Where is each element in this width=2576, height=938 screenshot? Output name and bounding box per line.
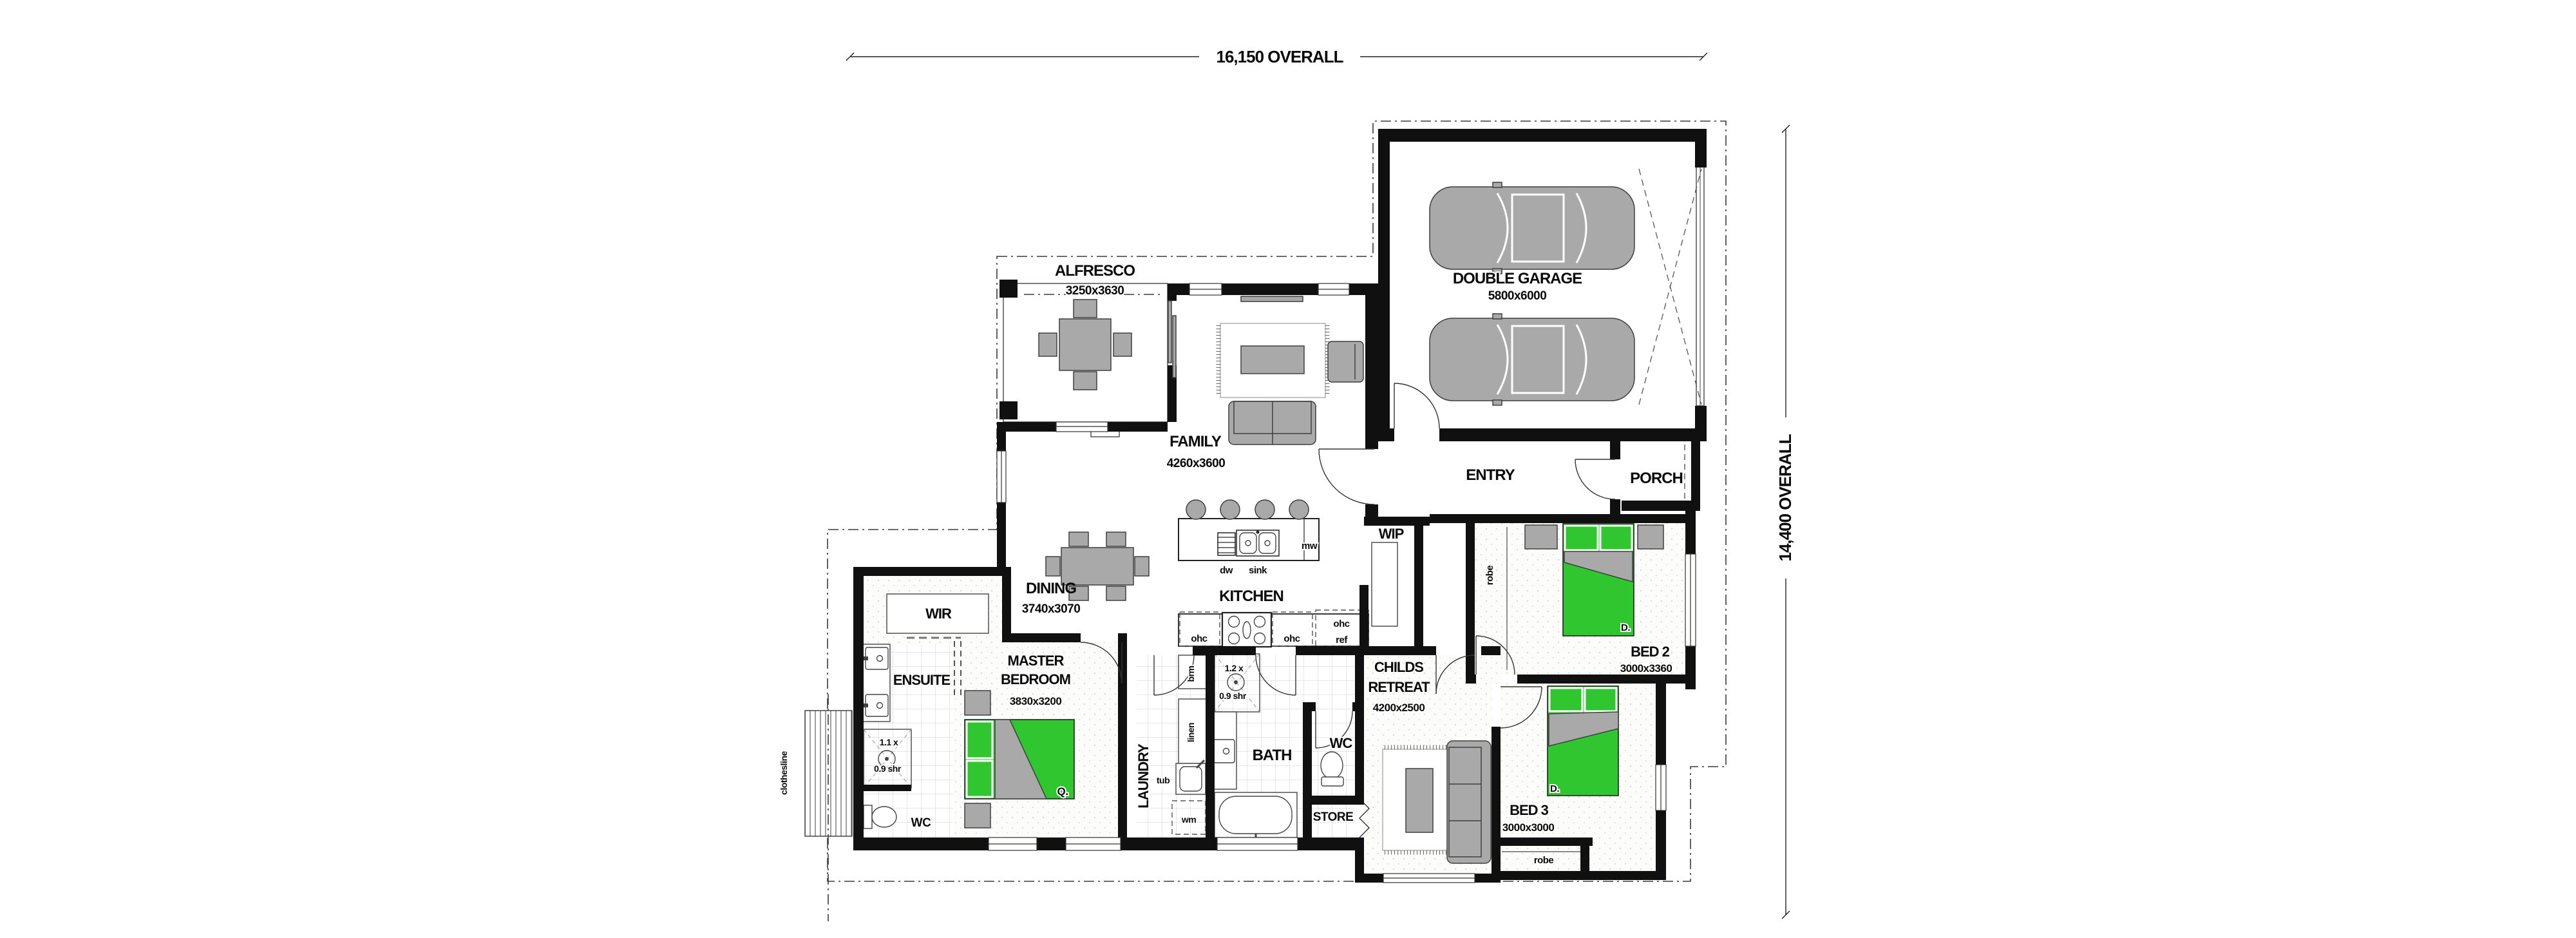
pillow	[967, 722, 992, 758]
room-label-bed3: BED 3	[1510, 802, 1549, 818]
toilet	[864, 805, 896, 828]
room-label-family: FAMILY	[1170, 433, 1222, 450]
childs-retreat-furniture	[1383, 741, 1491, 863]
room-label-wc-ensuite: WC	[911, 816, 931, 830]
floor-plan-page: 16,150 OVERALL 14,400 OVERALL ALFRESCO 3…	[0, 0, 2576, 938]
bedside-table	[1525, 525, 1557, 549]
bedside-table	[1638, 525, 1663, 549]
room-label-porch: PORCH	[1630, 470, 1683, 487]
car-top-view	[1430, 182, 1634, 274]
room-label-kitchen: KITCHEN	[1219, 588, 1283, 605]
label-double-bed2: D.	[1621, 622, 1630, 633]
label-ensuite-shower-2: 0.9 shr	[874, 763, 902, 774]
pillow	[1565, 526, 1598, 550]
window	[989, 837, 1037, 850]
room-label-wip: WIP	[1379, 526, 1404, 542]
coffee-table	[1241, 346, 1304, 374]
sofa-two-seat	[1229, 401, 1316, 445]
sofa-three-seat	[1447, 741, 1491, 863]
label-broom: brm	[1186, 665, 1196, 682]
room-label-dining: DINING	[1026, 580, 1076, 597]
label-microwave: mw	[1302, 541, 1318, 551]
label-robe-bed2: robe	[1484, 566, 1495, 586]
double-sink	[1236, 530, 1279, 556]
label-dishwasher: dw	[1220, 565, 1233, 576]
room-label-laundry: LAUNDRY	[1135, 743, 1151, 809]
vanity-bench	[863, 644, 890, 722]
pillow	[967, 761, 992, 797]
label-bath-shower-1: 1.2 x	[1225, 663, 1244, 673]
alfresco-table-setting	[1039, 300, 1132, 390]
room-label-wir: WIR	[925, 606, 952, 622]
label-clothesline: clothesline	[779, 751, 789, 794]
label-queen-bed: Q.	[1057, 785, 1068, 798]
room-label-ensuite: ENSUITE	[893, 672, 951, 688]
bedside-table	[965, 691, 990, 715]
window	[1066, 837, 1121, 850]
laundry-tub	[1176, 760, 1206, 794]
garage-panel-door	[1639, 166, 1704, 406]
label-sink: sink	[1249, 565, 1267, 576]
pillow	[1600, 526, 1632, 550]
room-label-alfresco: ALFRESCO	[1055, 262, 1135, 280]
room-label-store: STORE	[1313, 810, 1354, 824]
label-double-bed3: D.	[1550, 783, 1559, 794]
room-label-childs-1: CHILDS	[1374, 659, 1423, 675]
room-dims-dining: 3740x3070	[1022, 602, 1081, 616]
room-label-master-2: BEDROOM	[1001, 671, 1070, 687]
room-label-master-1: MASTER	[1008, 653, 1065, 669]
label-wm: wm	[1181, 814, 1196, 825]
pillow	[1585, 688, 1616, 711]
bathtub	[1215, 792, 1297, 841]
coffee-table	[1406, 769, 1433, 832]
family-furniture	[1218, 296, 1363, 445]
label-bath-shower-2: 0.9 shr	[1219, 691, 1247, 701]
wip-pantry-bench	[1372, 542, 1397, 626]
window	[1383, 874, 1475, 883]
room-dims-bed2: 3000x3360	[1620, 662, 1672, 675]
overall-width-dimension: 16,150 OVERALL	[1217, 47, 1344, 66]
window	[1318, 283, 1349, 295]
room-dims-family: 4260x3600	[1167, 457, 1226, 470]
window	[1056, 422, 1108, 432]
dishwasher	[1218, 533, 1235, 555]
label-ohc-1: ohc	[1191, 633, 1207, 644]
label-linen: linen	[1186, 723, 1196, 742]
wc-toilet	[1321, 752, 1343, 786]
room-label-bed2: BED 2	[1631, 644, 1670, 660]
floor-plan-drawing: 16,150 OVERALL 14,400 OVERALL ALFRESCO 3…	[741, 26, 1868, 928]
label-ohc-3: ohc	[1333, 618, 1349, 629]
door-garage-internal	[1394, 383, 1439, 428]
window	[997, 451, 1006, 503]
armchair	[1328, 341, 1363, 382]
window	[1217, 837, 1298, 850]
room-dims-alfresco: 3250x3630	[1066, 284, 1124, 298]
room-label-entry: ENTRY	[1466, 466, 1515, 484]
clothesline-structure	[805, 694, 852, 921]
room-label-bath: BATH	[1253, 747, 1292, 764]
room-dims-bed3: 3000x3000	[1502, 821, 1555, 834]
kitchen-stools	[1186, 500, 1309, 519]
label-tub: tub	[1157, 775, 1170, 785]
label-ensuite-shower-1: 1.1 x	[880, 737, 898, 747]
pillow	[1549, 688, 1582, 711]
overall-height-dimension: 14,400 OVERALL	[1776, 434, 1795, 561]
room-label-childs-2: RETREAT	[1368, 679, 1430, 695]
window	[1189, 283, 1222, 295]
window	[1656, 765, 1666, 810]
tv-unit	[1241, 296, 1303, 301]
door-family	[1319, 449, 1374, 504]
label-robe-bed3: robe	[1534, 855, 1554, 866]
room-dims-garage: 5800x6000	[1488, 289, 1547, 303]
bedside-table	[965, 803, 990, 828]
kitchen-island	[1179, 519, 1319, 560]
cooktop	[1222, 613, 1271, 647]
label-ref: ref	[1336, 635, 1348, 646]
door-front	[1575, 459, 1615, 499]
label-ohc-2: ohc	[1283, 633, 1300, 644]
room-dims-master: 3830x3200	[1010, 695, 1062, 707]
window	[1685, 554, 1696, 646]
room-label-garage: DOUBLE GARAGE	[1453, 270, 1582, 287]
room-label-wc-main: WC	[1330, 735, 1353, 751]
car-top-view	[1430, 314, 1634, 405]
room-dims-childs: 4200x2500	[1373, 702, 1425, 714]
